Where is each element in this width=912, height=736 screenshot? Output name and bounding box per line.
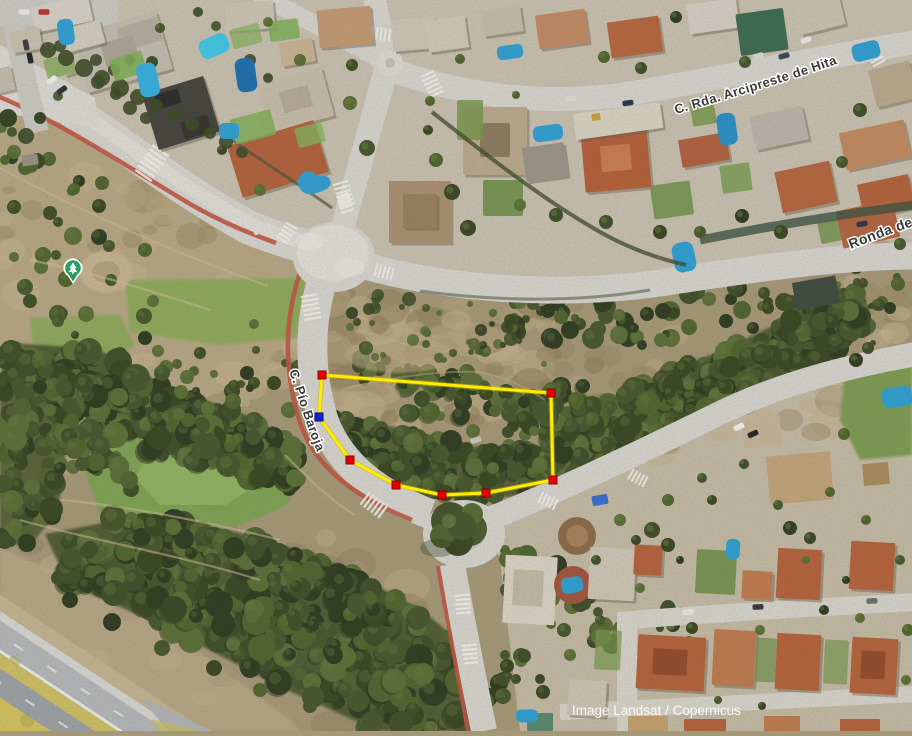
svg-text:Image Landsat / Copernicus: Image Landsat / Copernicus	[572, 703, 741, 718]
